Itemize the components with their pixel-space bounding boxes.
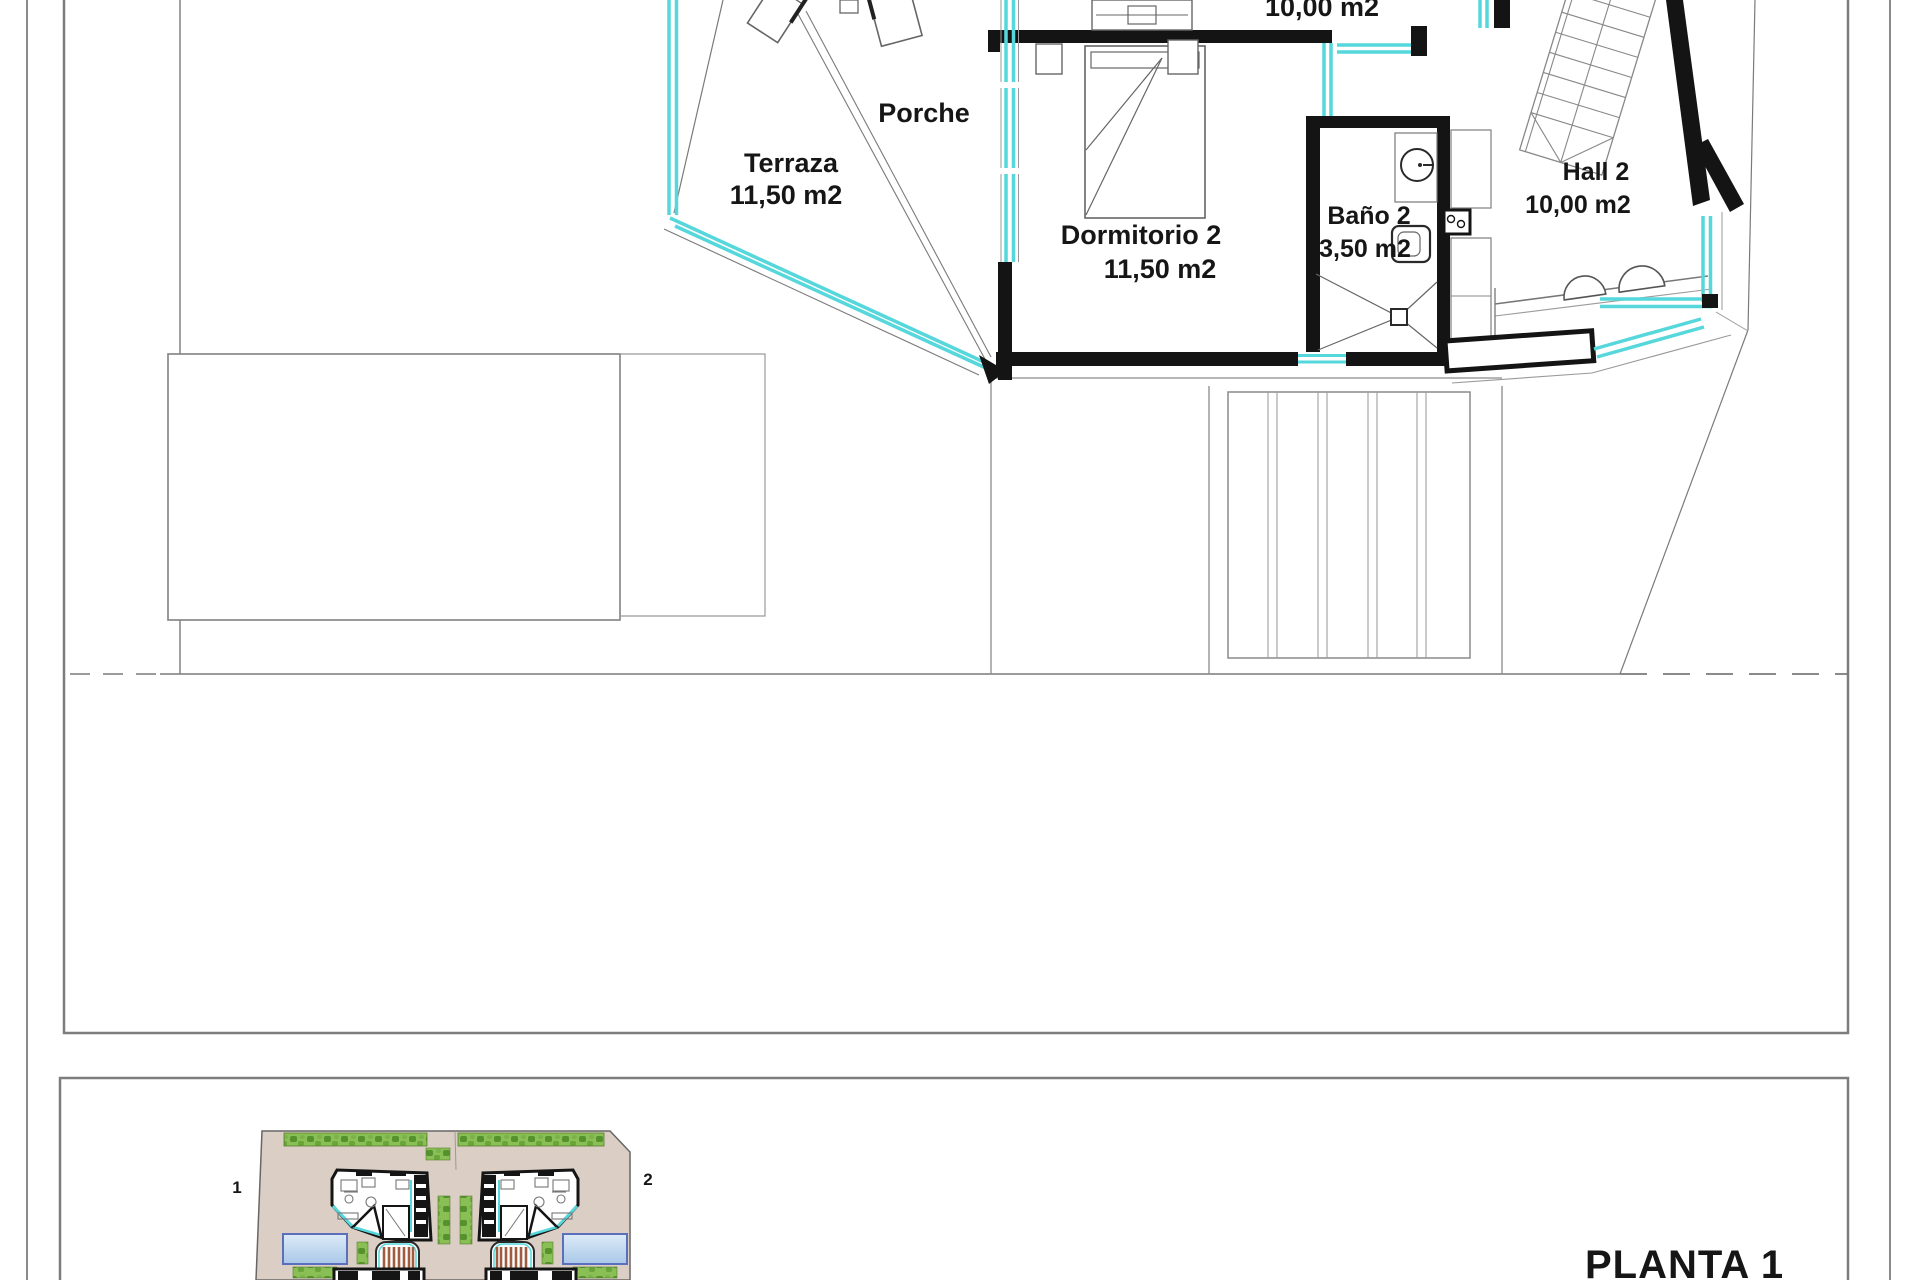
chair bbox=[1561, 273, 1606, 300]
hall2-area-label: 10,00 m2 bbox=[1525, 191, 1631, 219]
dormitorio-2 bbox=[988, 0, 1332, 380]
side-table bbox=[840, 0, 858, 13]
dormitorio2-label: Dormitorio 2 bbox=[1061, 220, 1222, 250]
nightstand bbox=[1168, 40, 1198, 74]
hedge-strip bbox=[284, 1133, 427, 1146]
laundry-sink bbox=[1444, 210, 1470, 234]
dresser bbox=[1092, 0, 1192, 30]
scanned-floor-plan-page: 10,00 m2 Porche Terraza 11,50 m2 Dormito… bbox=[0, 0, 1920, 1280]
upper-room-area-label: 10,00 m2 bbox=[1265, 0, 1379, 22]
sun-lounger bbox=[747, 0, 813, 43]
hedge-strip bbox=[458, 1133, 604, 1146]
sun-lounger bbox=[863, 0, 922, 46]
porche-label: Porche bbox=[878, 98, 970, 128]
dormitorio2-area-label: 11,50 m2 bbox=[1104, 254, 1217, 284]
hedge-strip bbox=[426, 1148, 450, 1160]
bano2-area-label: 3,50 m2 bbox=[1319, 235, 1411, 263]
terraza-label: Terraza bbox=[744, 148, 839, 178]
villa1-number-label: 1 bbox=[232, 1178, 241, 1197]
chair bbox=[1616, 263, 1665, 292]
villa2-number-label: 2 bbox=[643, 1170, 652, 1189]
site-plan: 1 2 bbox=[232, 1131, 652, 1280]
nightstand bbox=[1036, 44, 1062, 74]
bano2-label: Baño 2 bbox=[1327, 202, 1410, 230]
bano-2 bbox=[1306, 0, 1510, 352]
timber-deck bbox=[991, 378, 1502, 674]
architectural-plan-canvas: 10,00 m2 Porche Terraza 11,50 m2 Dormito… bbox=[0, 0, 1920, 1280]
pool-outline bbox=[168, 354, 765, 620]
hall2-label: Hall 2 bbox=[1563, 158, 1630, 186]
terraza-area-label: 11,50 m2 bbox=[730, 180, 843, 210]
entry-fin-wall bbox=[1445, 331, 1594, 371]
south-wall bbox=[996, 319, 1731, 383]
plan-title: PLANTA 1 bbox=[1585, 1243, 1784, 1280]
shower bbox=[1316, 274, 1437, 350]
shower-drain bbox=[1391, 309, 1407, 325]
closet-band bbox=[1451, 130, 1491, 350]
staircase bbox=[1520, 0, 1657, 175]
